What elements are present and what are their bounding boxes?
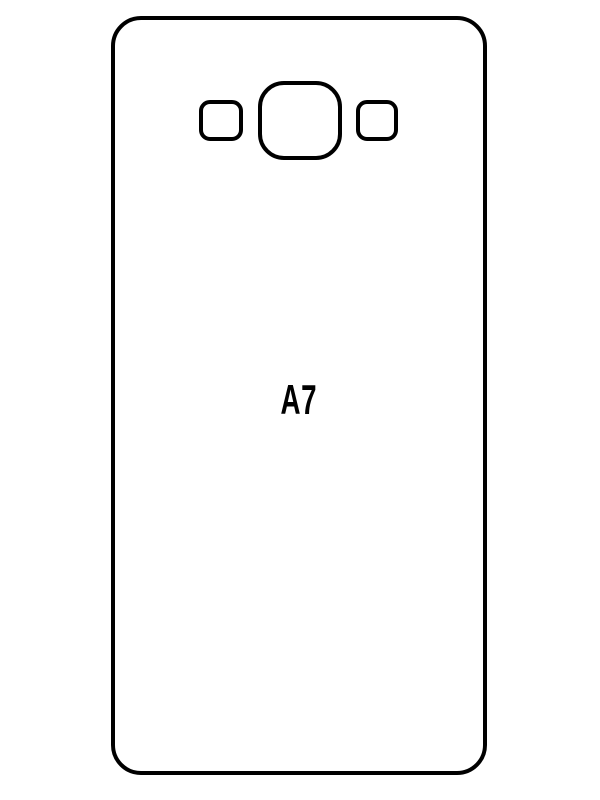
camera-lens-cutout-icon bbox=[258, 81, 342, 160]
flash-cutout-icon bbox=[356, 100, 398, 141]
screen-protector-template: A7 bbox=[0, 0, 600, 800]
model-label-text: A7 bbox=[281, 379, 318, 421]
speaker-cutout-icon bbox=[199, 100, 243, 141]
phone-back-outline: A7 bbox=[111, 16, 487, 775]
model-label: A7 bbox=[115, 370, 483, 430]
